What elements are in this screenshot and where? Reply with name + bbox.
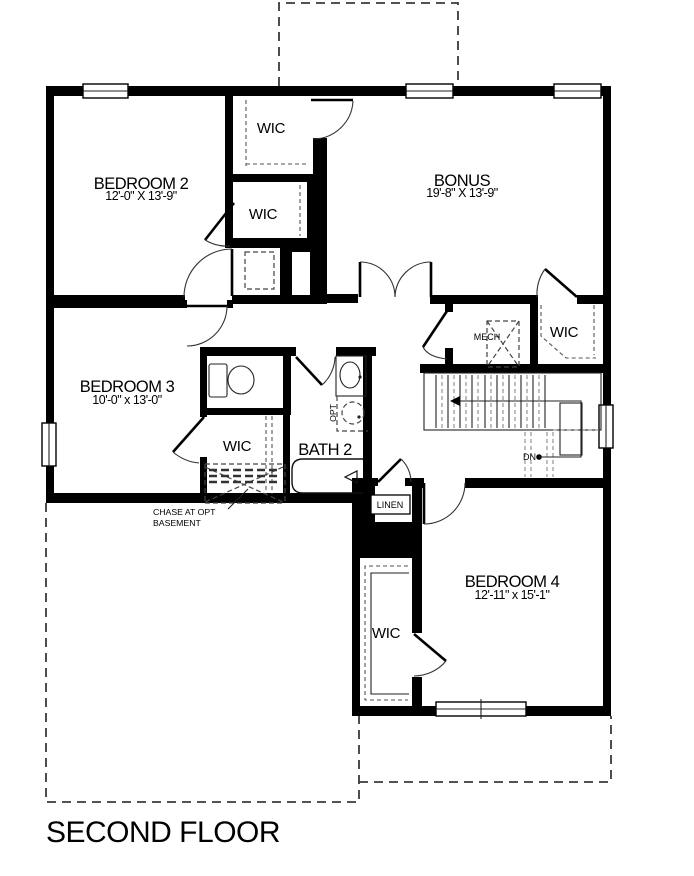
arrow-head bbox=[450, 396, 460, 406]
window-bedroom4 bbox=[436, 699, 526, 719]
wic-bed4-label: WIC bbox=[372, 625, 401, 642]
labels: BEDROOM 2 12'-0" X 13'-9" BONUS 19'-8" X… bbox=[80, 120, 579, 642]
window-bonus-left bbox=[406, 84, 453, 98]
mech-platform-dashed bbox=[487, 321, 519, 367]
footprint-left-dashed bbox=[46, 503, 359, 802]
wic-bonus-label: WIC bbox=[550, 324, 579, 341]
window-bonus-right bbox=[554, 84, 601, 98]
wic-bed2-label: WIC bbox=[249, 206, 278, 223]
attic-access-dashed bbox=[245, 252, 274, 289]
bonus-dims: 19'-8" X 13'-9" bbox=[426, 186, 498, 200]
double-door-bonus bbox=[360, 262, 431, 297]
door-wic-bedroom3 bbox=[173, 417, 204, 463]
door-wic-bedroom4 bbox=[414, 634, 446, 676]
door-wic-top bbox=[311, 100, 353, 139]
window-bedroom3 bbox=[42, 423, 56, 466]
page-title: SECOND FLOOR bbox=[46, 816, 280, 849]
door-bedroom3 bbox=[187, 306, 227, 346]
sink-vanity bbox=[336, 356, 366, 396]
bedroom3-dims: 10'-0" x 13'-0" bbox=[92, 393, 161, 407]
door-bath2 bbox=[296, 357, 335, 385]
landing-rail bbox=[560, 403, 582, 455]
roof-outline-dashed bbox=[279, 3, 458, 86]
wic-top-label: WIC bbox=[257, 120, 286, 137]
door-wic-bonus bbox=[537, 269, 577, 297]
chase-shelf-bars bbox=[209, 470, 281, 482]
window-bedroom2 bbox=[83, 84, 128, 98]
staircase bbox=[424, 373, 601, 477]
door-bedroom2 bbox=[184, 249, 232, 297]
bath2-label: BATH 2 bbox=[298, 441, 352, 459]
floor-plan-page: BEDROOM 2 12'-0" X 13'-9" BONUS 19'-8" X… bbox=[0, 0, 694, 876]
chase-note-line1: CHASE AT OPT bbox=[153, 507, 216, 517]
chase-note-line2: BASEMENT bbox=[153, 518, 201, 528]
door-bedroom4 bbox=[424, 483, 465, 524]
linen-label: LINEN bbox=[377, 500, 404, 510]
down-label: DN bbox=[523, 452, 536, 462]
bedroom2-dims: 12'-0" X 13'-9" bbox=[105, 189, 177, 203]
bedroom4-dims: 12'-11" x 15'-1" bbox=[475, 588, 550, 602]
footprint-right-dashed bbox=[359, 716, 611, 782]
floor-plan-drawing: BEDROOM 2 12'-0" X 13'-9" BONUS 19'-8" X… bbox=[0, 0, 694, 876]
mech-label: MECH bbox=[474, 332, 501, 342]
linen-label-box: LINEN bbox=[371, 495, 410, 514]
stairwell-void-dashed bbox=[525, 430, 601, 477]
opt-label: OPT bbox=[328, 403, 338, 422]
wic-bed3-label: WIC bbox=[223, 438, 252, 455]
hall-niche bbox=[292, 252, 310, 295]
toilet bbox=[209, 364, 254, 397]
